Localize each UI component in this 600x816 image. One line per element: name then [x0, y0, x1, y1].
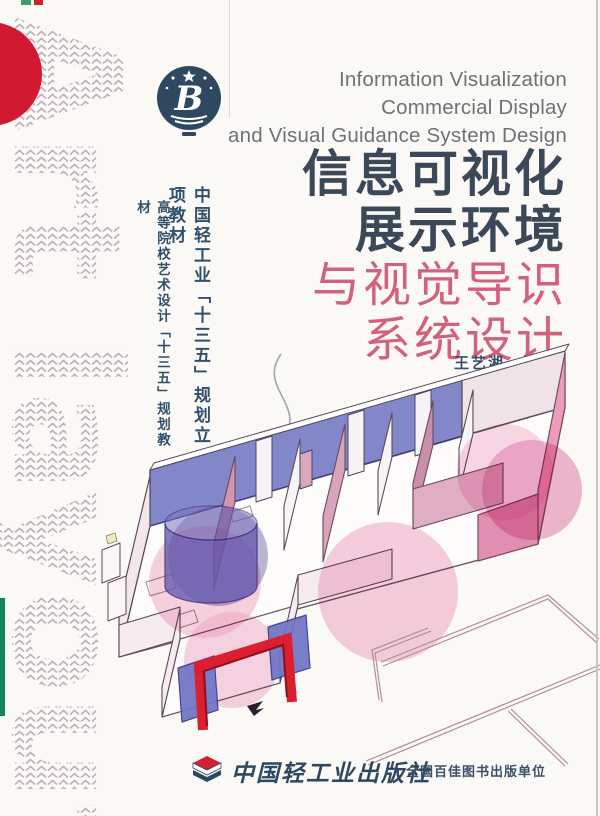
- book-edge-line: [596, 0, 598, 816]
- title-line-3: 与视觉导识: [312, 258, 567, 313]
- purple-cylinder: [165, 506, 268, 606]
- english-title: Information Visualization Commercial Dis…: [228, 66, 567, 150]
- chinese-title-dark: 信息可视化 展示环境: [302, 146, 567, 258]
- publisher-badge: 全国百佳图书出版单位: [406, 761, 546, 780]
- title-line-2: 展示环境: [302, 202, 567, 258]
- publisher-name: 中国轻工业出版社: [231, 754, 431, 788]
- top-speck-green: [21, 0, 31, 5]
- english-title-line-1: Information Visualization: [228, 66, 567, 94]
- left-wall-blocks: [102, 543, 126, 621]
- press-logo: B: [155, 62, 223, 142]
- floorplan-illustration: [0, 330, 600, 816]
- book-cover: Art layout B 中国轻工业「十三五」规划立项教材 高等院校艺术设计「十…: [0, 0, 600, 816]
- publisher-book-icon: [190, 754, 224, 784]
- publisher-footer: 中国轻工业出版社 全国百佳图书出版单位: [0, 748, 600, 793]
- press-logo-b-glyph: B: [174, 79, 204, 119]
- top-speck-red: [34, 0, 43, 5]
- english-title-line-2: Commercial Display: [228, 94, 567, 122]
- title-line-1: 信息可视化: [302, 146, 567, 202]
- back-wall-pink-tab: [300, 450, 312, 489]
- yellow-marker: [106, 533, 117, 544]
